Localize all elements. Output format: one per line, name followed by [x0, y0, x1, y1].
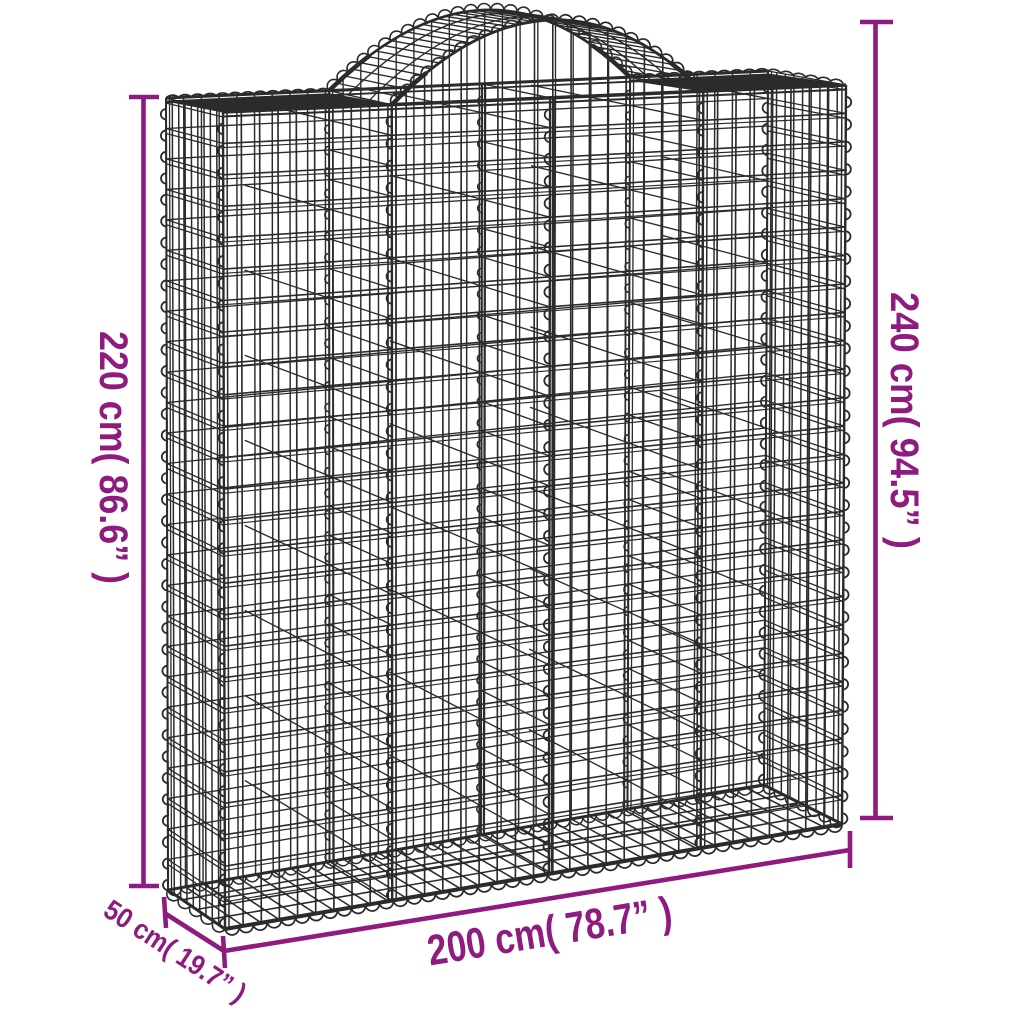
svg-text:220 cm( 86.6” ): 220 cm( 86.6” ) — [91, 331, 135, 584]
svg-text:240 cm( 94.5” ): 240 cm( 94.5” ) — [882, 292, 926, 549]
svg-text:200 cm( 78.7” ): 200 cm( 78.7” ) — [424, 888, 676, 975]
